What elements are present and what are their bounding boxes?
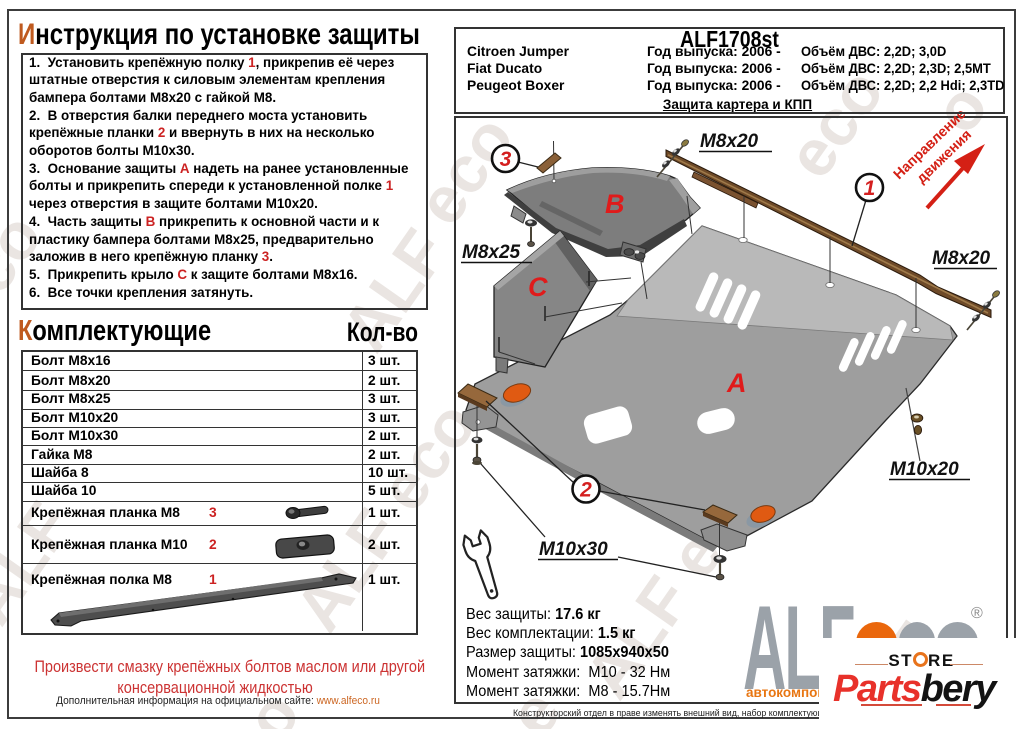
- svg-text:М10х20: М10х20: [890, 459, 959, 480]
- svg-text:1: 1: [864, 177, 876, 200]
- svg-text:С: С: [528, 272, 548, 302]
- svg-text:2: 2: [579, 479, 592, 502]
- svg-text:М8х20: М8х20: [932, 248, 991, 269]
- svg-text:3: 3: [500, 148, 512, 171]
- svg-text:М8х25: М8х25: [462, 242, 521, 263]
- svg-text:М8х20: М8х20: [700, 131, 759, 152]
- svg-text:В: В: [605, 189, 625, 219]
- svg-text:М10х30: М10х30: [539, 539, 608, 560]
- svg-text:А: А: [726, 368, 747, 398]
